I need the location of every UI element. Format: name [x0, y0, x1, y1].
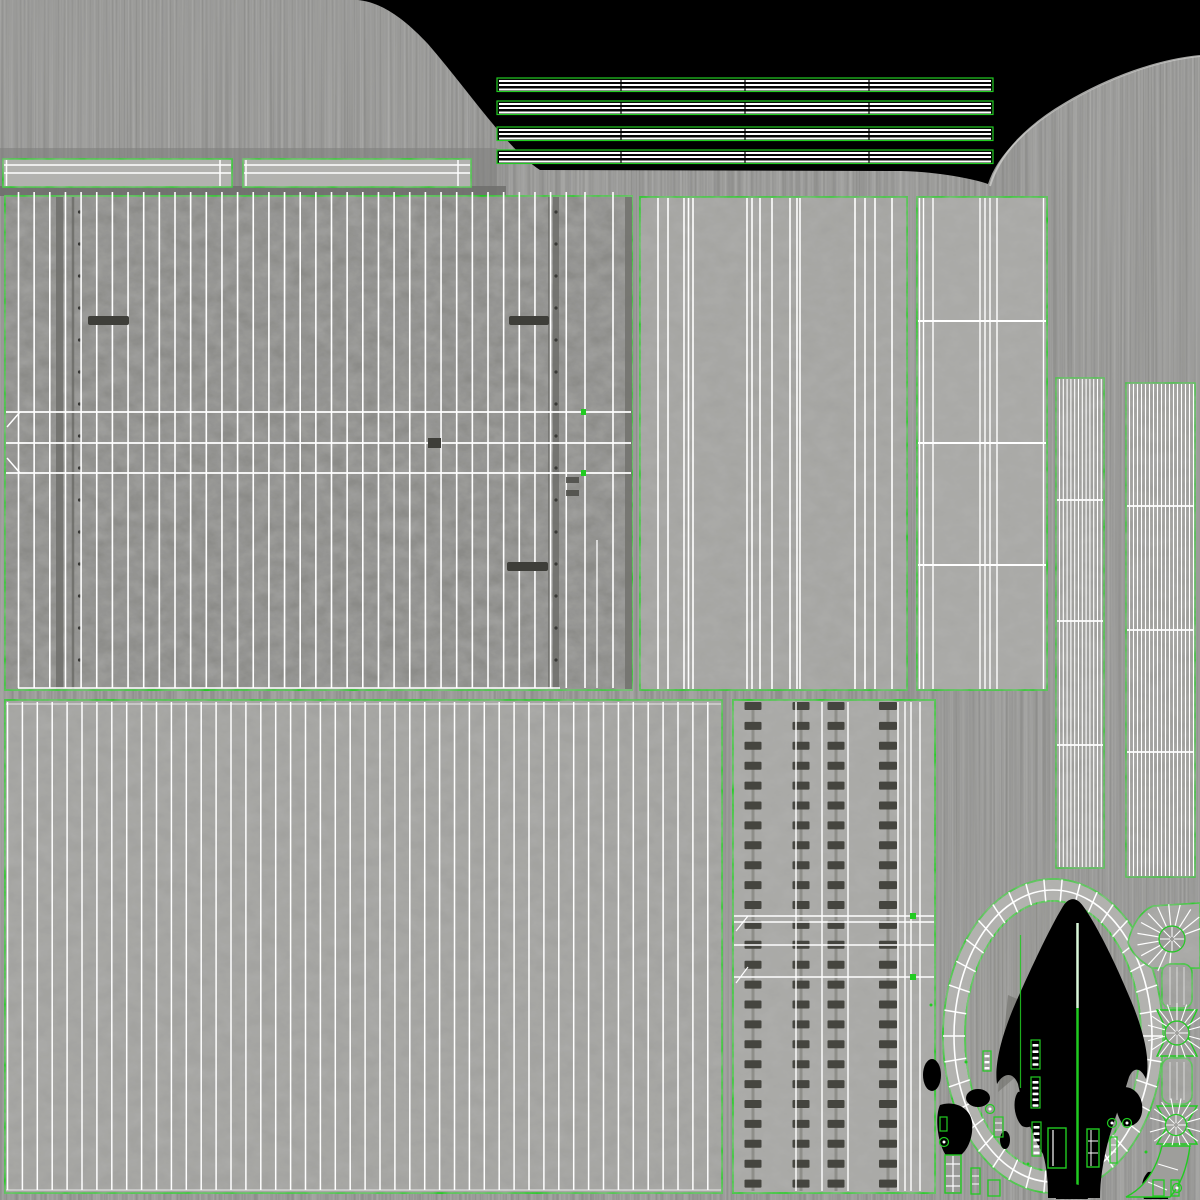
uv-seam-marker [910, 974, 916, 980]
ladder-rungs [1034, 1126, 1040, 1129]
bracket-mark [566, 477, 579, 483]
uv-seam-marker [581, 470, 586, 476]
uv-vertex-dot [930, 1004, 933, 1007]
floor-panel-island [640, 197, 907, 690]
door-handle-bar [88, 316, 129, 325]
sleeper-tie-column [745, 1001, 762, 1009]
sleeper-tie-column [793, 1160, 810, 1168]
sleeper-tie-column [793, 1040, 810, 1048]
sleeper-tie-column [793, 802, 810, 810]
sleeper-tie-column [793, 901, 810, 909]
sleeper-tie-column [745, 762, 762, 770]
ladder-rungs [985, 1067, 990, 1069]
sleeper-tie-column [828, 1080, 845, 1088]
uv-seam-marker [910, 913, 916, 919]
wall-bolt-dots [554, 402, 557, 405]
uv-vertex-dot [1145, 1151, 1148, 1154]
sleeper-tie-column [879, 981, 897, 989]
sleeper-tie-column [828, 1020, 845, 1028]
sleeper-tie-column [745, 841, 762, 849]
sleeper-tie-column [828, 802, 845, 810]
sleeper-tie-column [793, 1180, 810, 1188]
sleeper-tie-column [828, 1120, 845, 1128]
sleeper-tie-column [879, 702, 897, 710]
vent-plate [428, 438, 441, 448]
bracket-mark [566, 490, 579, 496]
sleeper-tie-column [828, 1001, 845, 1009]
sleeper-tie-column [879, 1080, 897, 1088]
wall-bolt-dots [554, 562, 557, 565]
wall-bolt-dots [554, 370, 557, 373]
sleeper-tie-column [828, 901, 845, 909]
ladder-rungs [1034, 1132, 1040, 1135]
ladder-rungs [1033, 1063, 1039, 1066]
gear-marker-dot [1111, 1122, 1114, 1125]
gear-marker-dot [1126, 1122, 1129, 1125]
wall-bolt-dots [554, 274, 557, 277]
ladder-rungs [1033, 1104, 1039, 1107]
sleeper-tie-column [828, 841, 845, 849]
sleeper-tie-column [745, 1080, 762, 1088]
wall-bolt-dots [554, 658, 557, 661]
gear-marker-dot [943, 1141, 946, 1144]
sleeper-tie-column [828, 1180, 845, 1188]
sleeper-tie-column [828, 722, 845, 730]
gear-marker-dot [989, 1108, 992, 1111]
sleeper-tie-column [879, 901, 897, 909]
sleeper-tie-column [828, 702, 845, 710]
ladder-rungs [1034, 1139, 1040, 1142]
wall-bolt-dots [554, 242, 557, 245]
sleeper-tie-column [745, 742, 762, 750]
sleeper-tie-column [879, 881, 897, 889]
sleeper-tie-column [828, 762, 845, 770]
ladder-rungs [1033, 1081, 1039, 1084]
sleeper-tie-column [879, 1140, 897, 1148]
ladder-rungs [1033, 1098, 1039, 1101]
uv-vertex-dot [1027, 1163, 1030, 1166]
uv-seam-marker [581, 409, 586, 415]
sleeper-tie-column [745, 1040, 762, 1048]
sleeper-tie-column [793, 1120, 810, 1128]
sleeper-tie-column [879, 1040, 897, 1048]
sleeper-tie-column [745, 981, 762, 989]
sleeper-tie-column [879, 841, 897, 849]
door-handle-bar [509, 316, 549, 325]
sleeper-tie-column [793, 861, 810, 869]
sleeper-tie-column [793, 821, 810, 829]
uv-texture-atlas [0, 0, 1200, 1200]
door-handle-bar [507, 562, 548, 571]
sleeper-tie-column [793, 841, 810, 849]
ladder-rungs [985, 1055, 990, 1057]
sleeper-tie-column [745, 782, 762, 790]
wall-bolt-dots [554, 306, 557, 309]
ladder-rungs [1034, 1152, 1040, 1155]
sleeper-tie-column [793, 702, 810, 710]
sleeper-tie-column [828, 742, 845, 750]
sleeper-tie-column [879, 722, 897, 730]
sleeper-tie-column [879, 742, 897, 750]
sleeper-tie-column [879, 861, 897, 869]
sleeper-tie-column [745, 1100, 762, 1108]
sleeper-tie-column [828, 1140, 845, 1148]
sleeper-tie-column [745, 1180, 762, 1188]
sleeper-tie-column [745, 901, 762, 909]
sleeper-tie-column [828, 1060, 845, 1068]
sleeper-tie-column [879, 1120, 897, 1128]
sleeper-tie-column [828, 821, 845, 829]
sleeper-tie-column [793, 782, 810, 790]
sleeper-tie-column [793, 742, 810, 750]
sleeper-tie-column [879, 821, 897, 829]
sleeper-tie-column [793, 1060, 810, 1068]
sleeper-tie-column [828, 961, 845, 969]
sleeper-tie-column [745, 702, 762, 710]
sleeper-tie-column [793, 1080, 810, 1088]
sleeper-tie-column [793, 722, 810, 730]
sleeper-tie-column [793, 762, 810, 770]
ladder-rungs [1033, 1057, 1039, 1060]
wall-bolt-dots [554, 626, 557, 629]
sleeper-tie-column [745, 1060, 762, 1068]
ladder-rungs [985, 1061, 990, 1063]
sleeper-tie-column [879, 1060, 897, 1068]
ladder-rungs [1033, 1093, 1039, 1096]
sleeper-tie-column [879, 961, 897, 969]
sleeper-tie-column [879, 1020, 897, 1028]
sleeper-tie-column [745, 821, 762, 829]
sleeper-tie-column [793, 1100, 810, 1108]
gear-marker-dot [1176, 1187, 1179, 1190]
atlas-canvas [0, 0, 1200, 1200]
sleeper-tie-column [828, 782, 845, 790]
sleeper-tie-column [793, 1140, 810, 1148]
ladder-rungs [1033, 1087, 1039, 1090]
wall-bolt-dots [554, 530, 557, 533]
uv-vertex-dot [965, 1061, 968, 1064]
ladder-rungs [1034, 1145, 1040, 1148]
sleeper-tie-column [828, 1040, 845, 1048]
bake-blotch [1000, 1131, 1010, 1149]
sleeper-tie-column [745, 802, 762, 810]
sleeper-tie-column [745, 1020, 762, 1028]
sleeper-tie-column [879, 1001, 897, 1009]
sleeper-tie-column [793, 1020, 810, 1028]
bake-blotch [966, 1089, 990, 1107]
wall-bolt-dots [554, 210, 557, 213]
sleeper-tie-column [879, 1100, 897, 1108]
wall-bolt-dots [554, 434, 557, 437]
ladder-rungs [1033, 1050, 1039, 1053]
sleeper-tie-column [793, 961, 810, 969]
sleeper-tie-column [879, 1180, 897, 1188]
sleeper-tie-column [828, 861, 845, 869]
sleeper-tie-column [745, 722, 762, 730]
sleeper-tie-column [828, 881, 845, 889]
sleeper-tie-column [879, 782, 897, 790]
sleeper-tie-column [745, 1140, 762, 1148]
wall-bolt-dots [554, 594, 557, 597]
bake-blotch [923, 1059, 941, 1091]
ladder-rungs [1033, 1044, 1039, 1047]
sleeper-tie-column [745, 881, 762, 889]
sleeper-tie-column [793, 1001, 810, 1009]
sleeper-tie-column [828, 1100, 845, 1108]
sleeper-tie-column [745, 1160, 762, 1168]
sleeper-tie-column [745, 1120, 762, 1128]
sleeper-tie-column [745, 861, 762, 869]
sleeper-tie-column [879, 802, 897, 810]
sleeper-tie-column [793, 981, 810, 989]
wall-bolt-dots [554, 338, 557, 341]
sleeper-tie-column [828, 981, 845, 989]
sleeper-tie-column [879, 1160, 897, 1168]
sleeper-tie-column [828, 1160, 845, 1168]
sleeper-tie-column [793, 881, 810, 889]
wall-bolt-dots [554, 498, 557, 501]
sleeper-tie-column [879, 762, 897, 770]
wall-bolt-dots [554, 466, 557, 469]
